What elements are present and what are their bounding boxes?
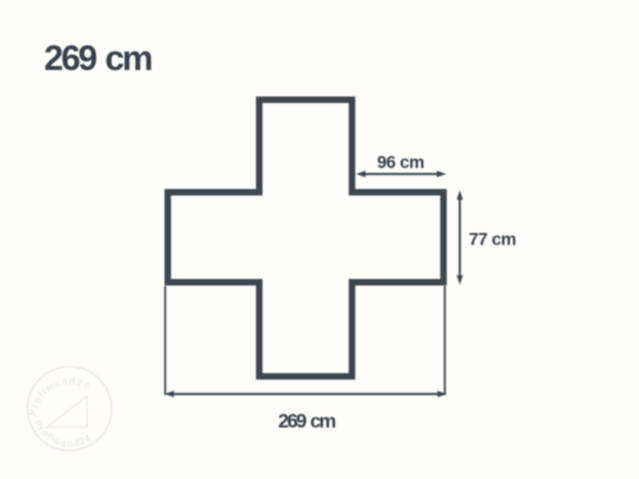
svg-text:269 cm: 269 cm [44,39,151,78]
svg-text:96 cm: 96 cm [377,152,424,172]
svg-text:Profiwand24: Profiwand24 [32,419,95,450]
svg-text:269 cm: 269 cm [278,411,336,433]
svg-text:77 cm: 77 cm [469,229,516,249]
